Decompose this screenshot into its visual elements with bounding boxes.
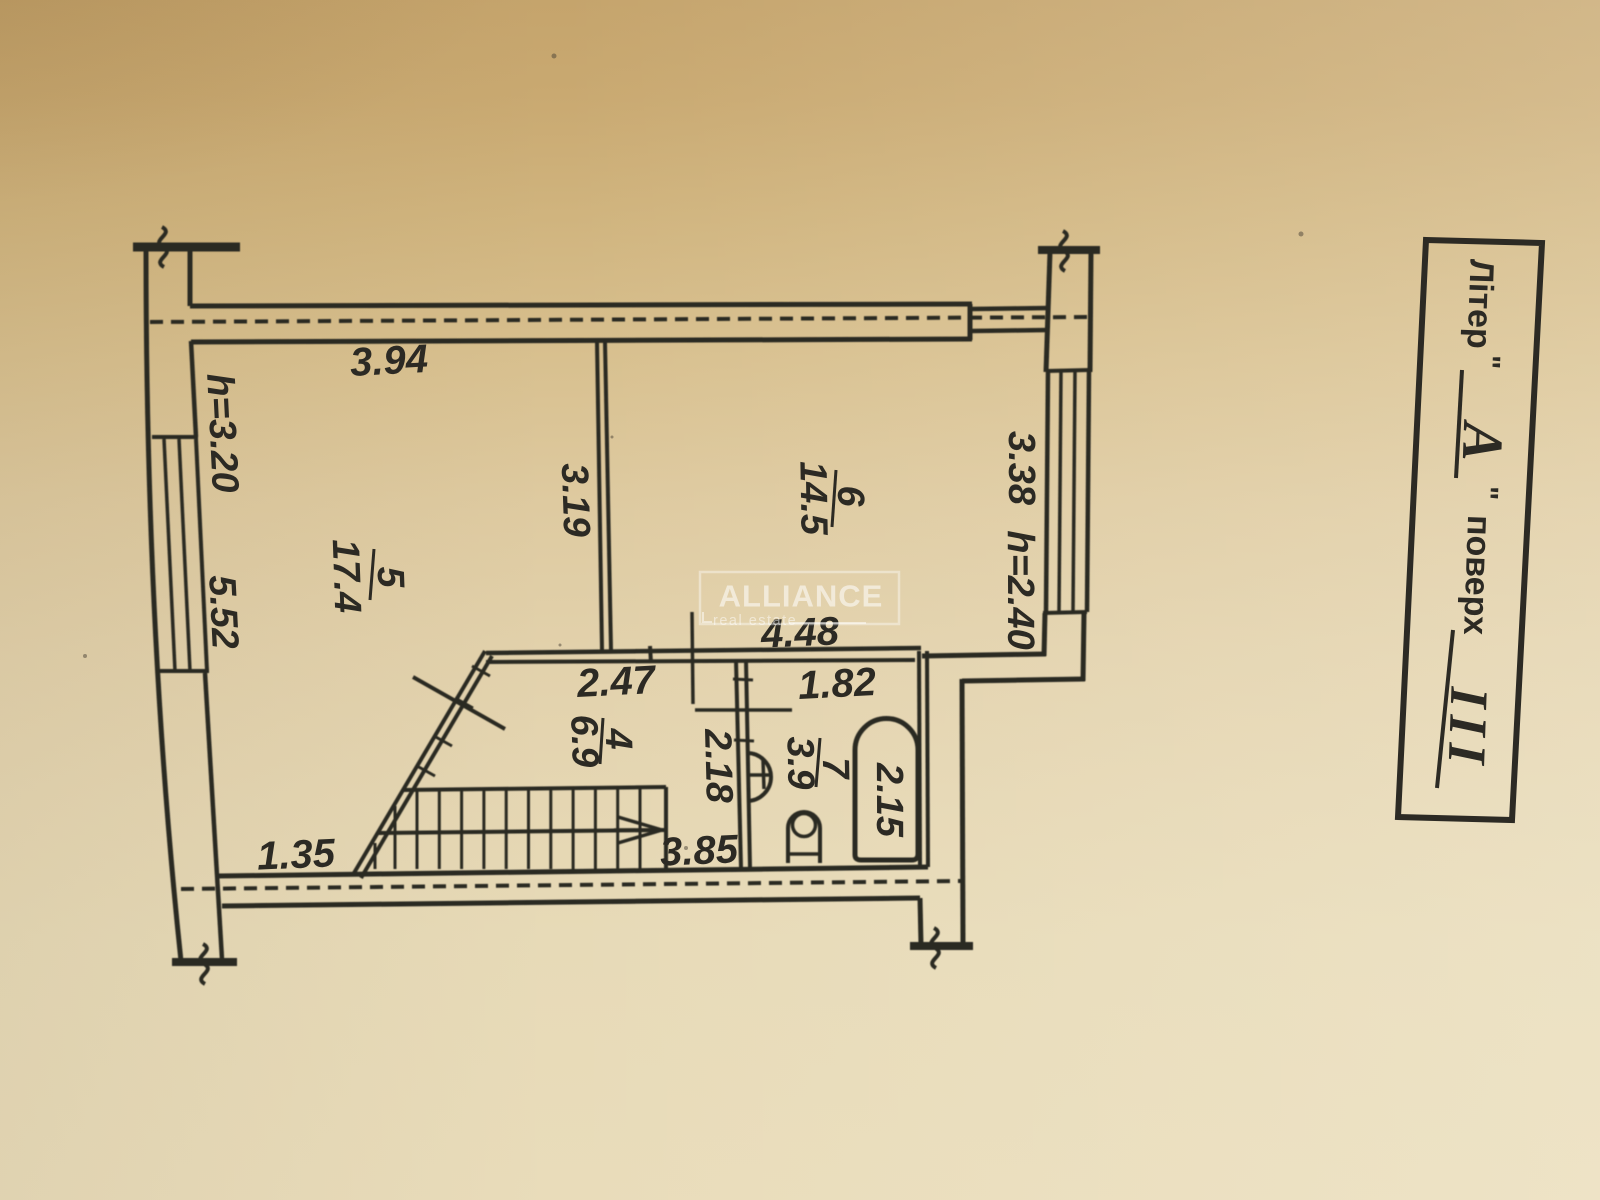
- svg-text:14.5: 14.5: [791, 461, 834, 537]
- svg-text:5.52: 5.52: [200, 574, 246, 650]
- svg-text:": ": [1470, 485, 1503, 500]
- svg-text:17.4: 17.4: [324, 538, 369, 613]
- svg-text:3.85: 3.85: [659, 827, 739, 874]
- svg-text:h=3.20: h=3.20: [198, 372, 246, 493]
- svg-text:5: 5: [369, 566, 412, 589]
- svg-text:h=2.40: h=2.40: [999, 530, 1041, 650]
- svg-text:3.38: 3.38: [1000, 431, 1042, 506]
- svg-text:поверх: поверх: [1456, 514, 1498, 635]
- svg-text:6: 6: [829, 485, 871, 508]
- svg-text:3.19: 3.19: [553, 462, 598, 537]
- svg-text:3.94: 3.94: [349, 337, 429, 385]
- svg-text:2.15: 2.15: [868, 762, 910, 838]
- svg-text:2.47: 2.47: [575, 658, 658, 706]
- svg-text:2.18: 2.18: [696, 727, 740, 804]
- svg-text:ALLIANCE: ALLIANCE: [719, 579, 884, 614]
- svg-text:": ": [1472, 354, 1505, 369]
- svg-text:7: 7: [814, 757, 856, 781]
- svg-text:1.82: 1.82: [797, 660, 877, 708]
- svg-text:4: 4: [597, 727, 640, 751]
- svg-text:real estate: real estate: [713, 613, 797, 629]
- svg-text:Літер: Літер: [1459, 259, 1500, 350]
- svg-text:1.35: 1.35: [256, 831, 336, 878]
